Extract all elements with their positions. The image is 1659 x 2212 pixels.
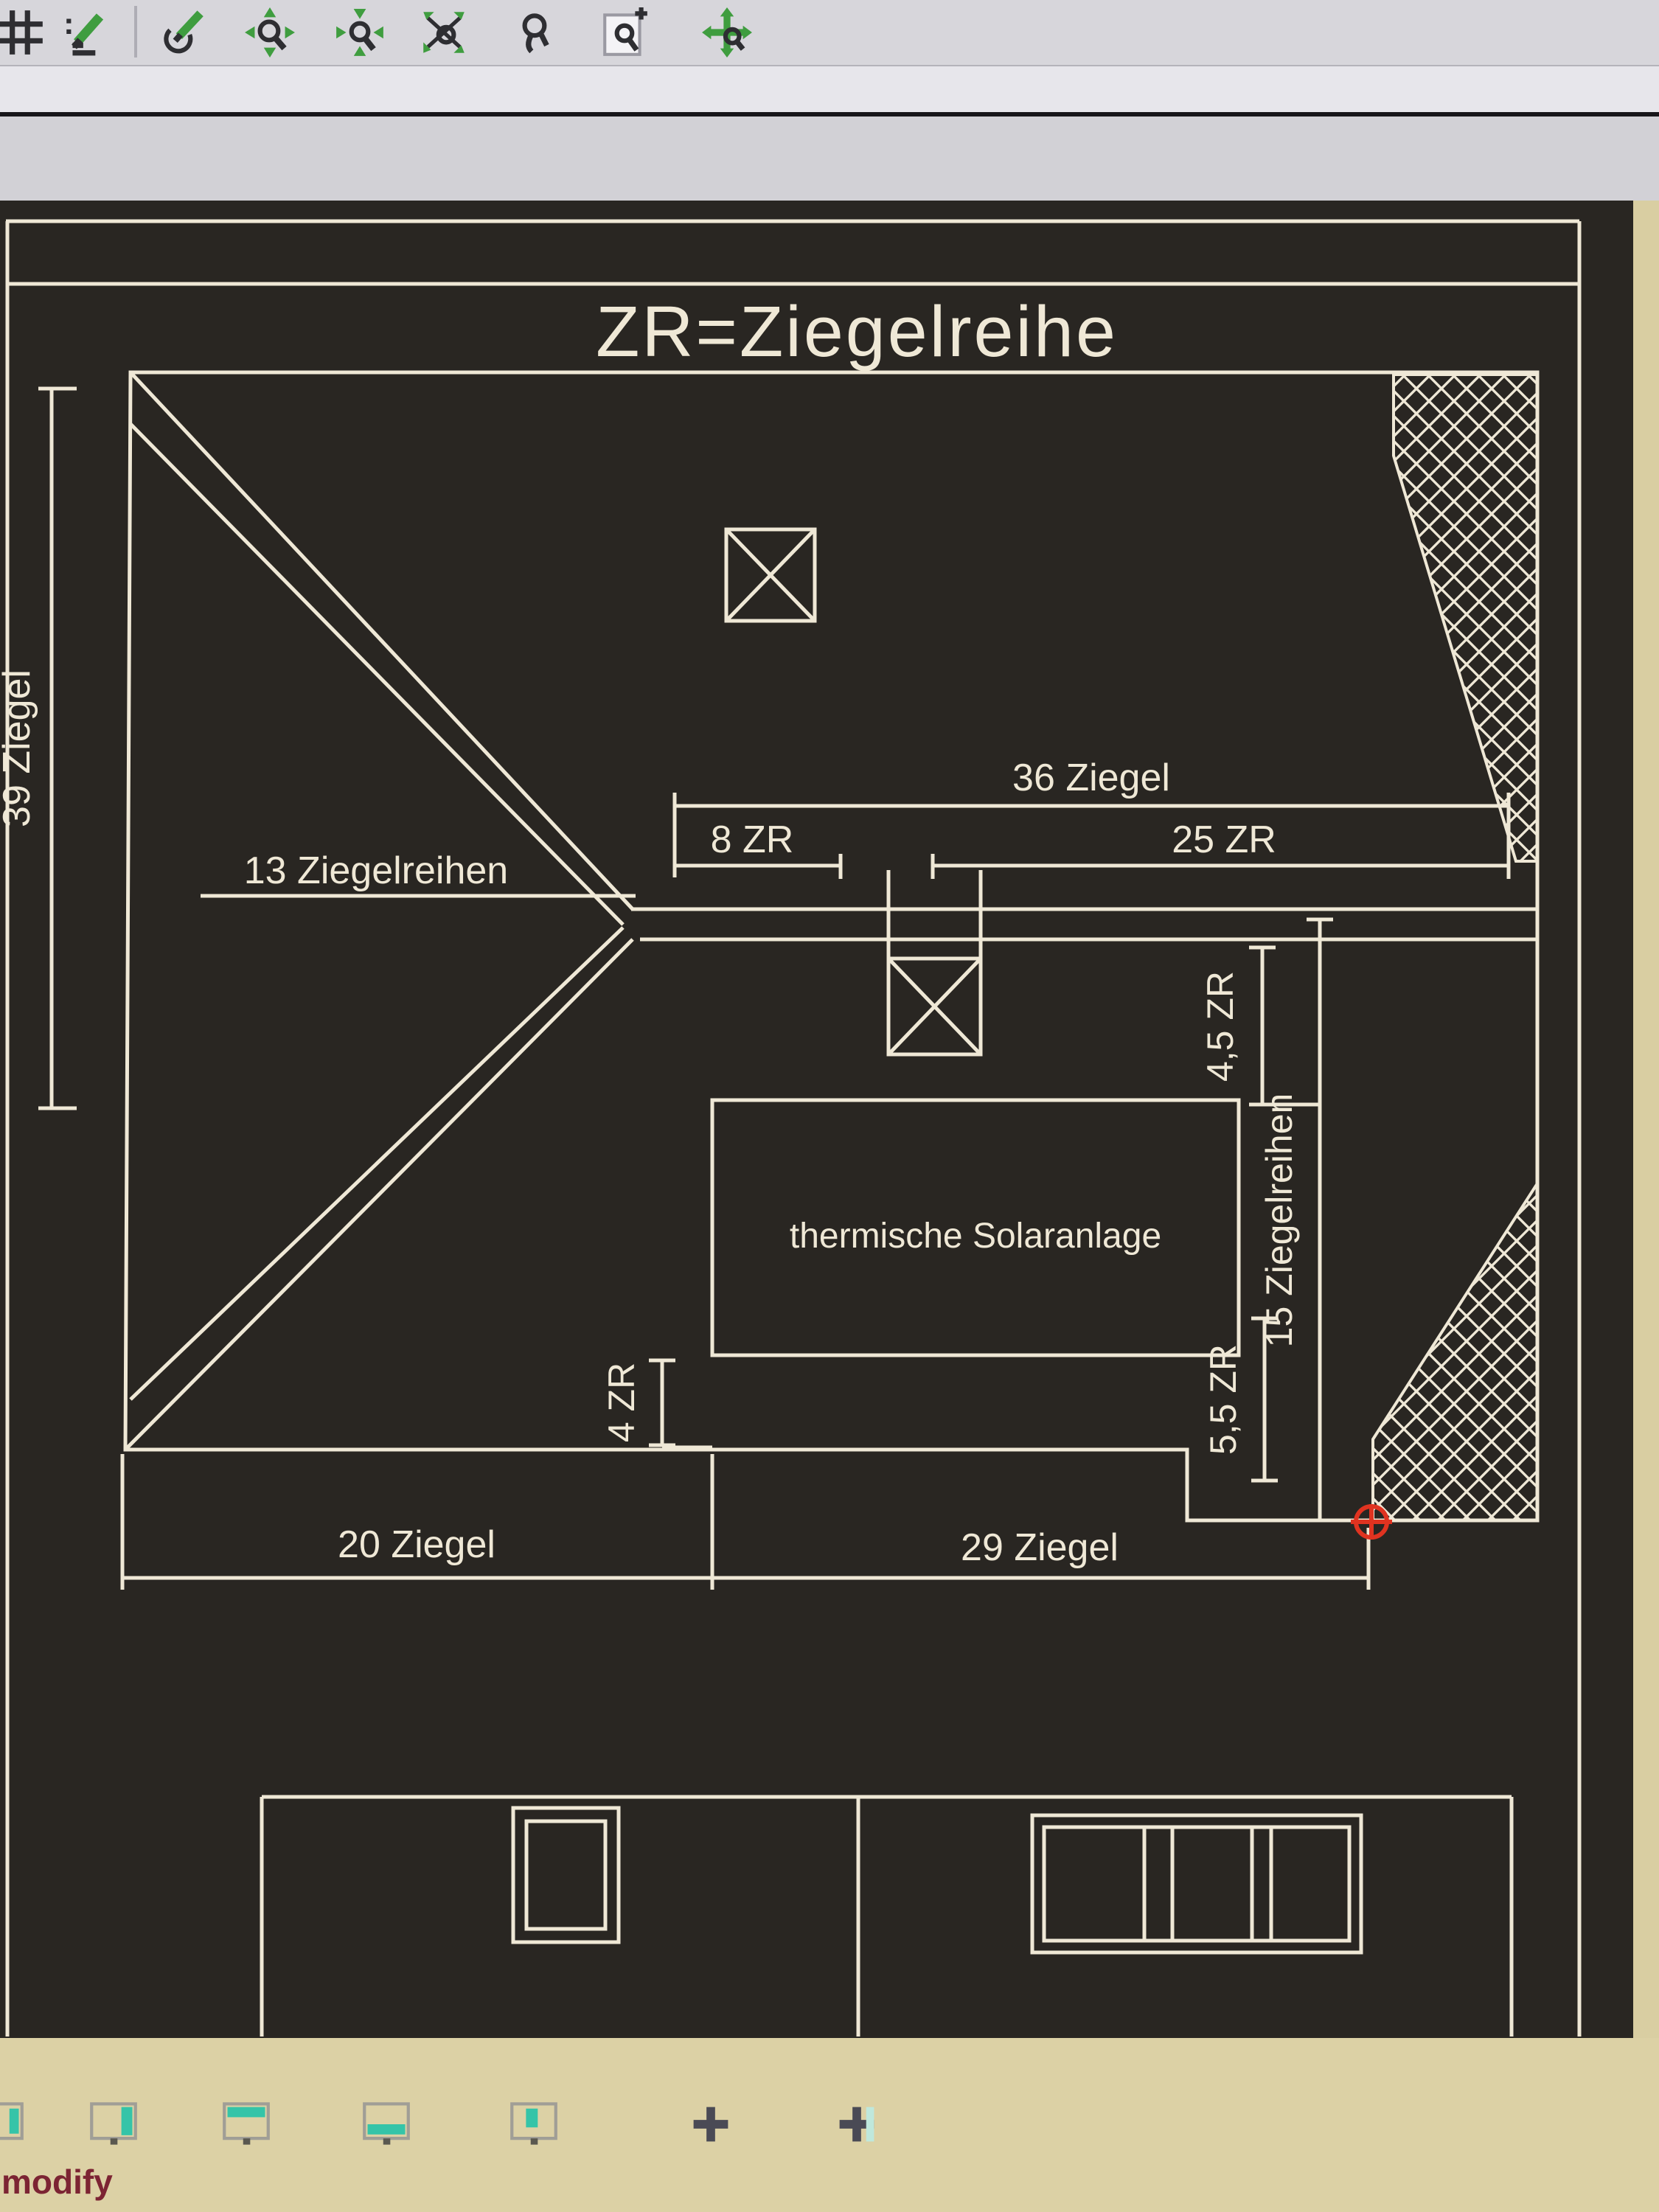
solar-panel-label: thermische Solaranlage bbox=[790, 1217, 1161, 1256]
dim-ridge-left-label: 8 ZR bbox=[711, 818, 794, 861]
dim-left-height-label: 39 Ziegel bbox=[0, 669, 38, 827]
zoom-dynamic-icon[interactable] bbox=[417, 6, 470, 59]
hatch-area-top-right bbox=[1394, 375, 1537, 861]
roof-outline bbox=[125, 372, 1537, 1520]
chrome-gray-strip bbox=[0, 116, 1659, 201]
dim-right-rows-label: 15 Ziegelreihen bbox=[1259, 1093, 1300, 1348]
dim-left-height bbox=[38, 389, 77, 1108]
dim-hip-rows-label: 13 Ziegelreihen bbox=[244, 849, 508, 892]
toolbar-lower-strip bbox=[0, 66, 1659, 112]
zoom-realtime-icon[interactable] bbox=[509, 6, 562, 59]
zoom-all-icon[interactable] bbox=[243, 6, 296, 59]
pan-zoom-icon[interactable] bbox=[700, 6, 754, 59]
dock-bottom-icon[interactable] bbox=[361, 2100, 411, 2149]
elevation-window-right bbox=[1032, 1815, 1361, 1952]
elevation-view bbox=[262, 1797, 1512, 2037]
zoom-window-icon[interactable] bbox=[599, 6, 652, 59]
cad-drawing: ZR=Ziegelreihe 3 bbox=[0, 201, 1633, 2038]
sketch-line-icon[interactable] bbox=[60, 6, 114, 59]
drawing-title: ZR=Ziegelreihe bbox=[596, 291, 1118, 372]
chimney-ridge bbox=[888, 870, 981, 1054]
dock-top-icon[interactable] bbox=[221, 2100, 271, 2149]
crosshair-plus-icon[interactable] bbox=[686, 2100, 736, 2149]
zoom-center-icon[interactable] bbox=[333, 6, 386, 59]
crosshair-plus-icon-2[interactable] bbox=[832, 2100, 882, 2149]
dock-float-icon[interactable] bbox=[509, 2100, 559, 2149]
dim-solar-gap bbox=[649, 1360, 712, 1447]
dim-right-lower-label: 5,5 ZR bbox=[1203, 1344, 1244, 1455]
ridge-lines bbox=[631, 909, 1537, 939]
dim-right-upper-label: 4,5 ZR bbox=[1200, 971, 1241, 1082]
dim-bottom-left-label: 20 Ziegel bbox=[338, 1523, 495, 1566]
grid-icon[interactable] bbox=[0, 6, 47, 59]
hatch-area-bottom-right bbox=[1373, 1183, 1537, 1520]
toolbar-separator bbox=[134, 6, 137, 58]
cad-canvas[interactable]: ZR=Ziegelreihe 3 bbox=[0, 201, 1633, 2038]
hip-diagonals bbox=[125, 372, 633, 1450]
pencil-arc-icon[interactable] bbox=[156, 6, 209, 59]
dim-bottom bbox=[122, 1454, 1368, 1590]
dim-ridge-right-label: 25 ZR bbox=[1172, 818, 1276, 861]
top-toolbar bbox=[0, 0, 1659, 66]
dock-partial-icon[interactable] bbox=[0, 2100, 25, 2149]
bottom-dock-area: modify bbox=[0, 2038, 1659, 2212]
desktop-right-strip bbox=[1633, 201, 1659, 2212]
chimney-upper bbox=[726, 529, 815, 621]
dock-right-icon[interactable] bbox=[88, 2100, 139, 2149]
dim-ridge bbox=[675, 854, 1509, 879]
dim-right-upper bbox=[1249, 947, 1318, 1105]
dim-bottom-right-label: 29 Ziegel bbox=[961, 1526, 1119, 1569]
status-bar-text: modify bbox=[1, 2162, 113, 2202]
dim-solar-gap-label: 4 ZR bbox=[601, 1363, 642, 1442]
elevation-window-left bbox=[513, 1808, 619, 1942]
dim-top-width-label: 36 Ziegel bbox=[1012, 757, 1170, 799]
dim-right-rows bbox=[1307, 919, 1333, 1520]
app-window: ZR=Ziegelreihe 3 bbox=[0, 0, 1659, 2212]
